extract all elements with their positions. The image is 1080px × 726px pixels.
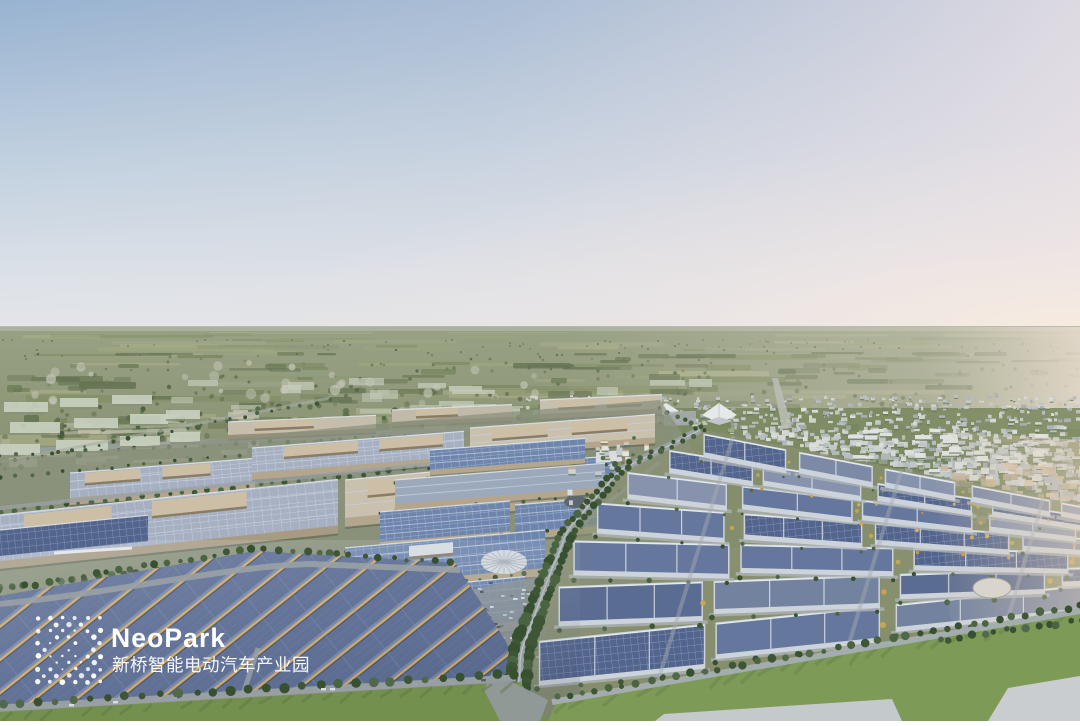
svg-text:NeoPark: NeoPark [111,623,226,653]
svg-text:新桥智能电动汽车产业园: 新桥智能电动汽车产业园 [112,655,310,675]
